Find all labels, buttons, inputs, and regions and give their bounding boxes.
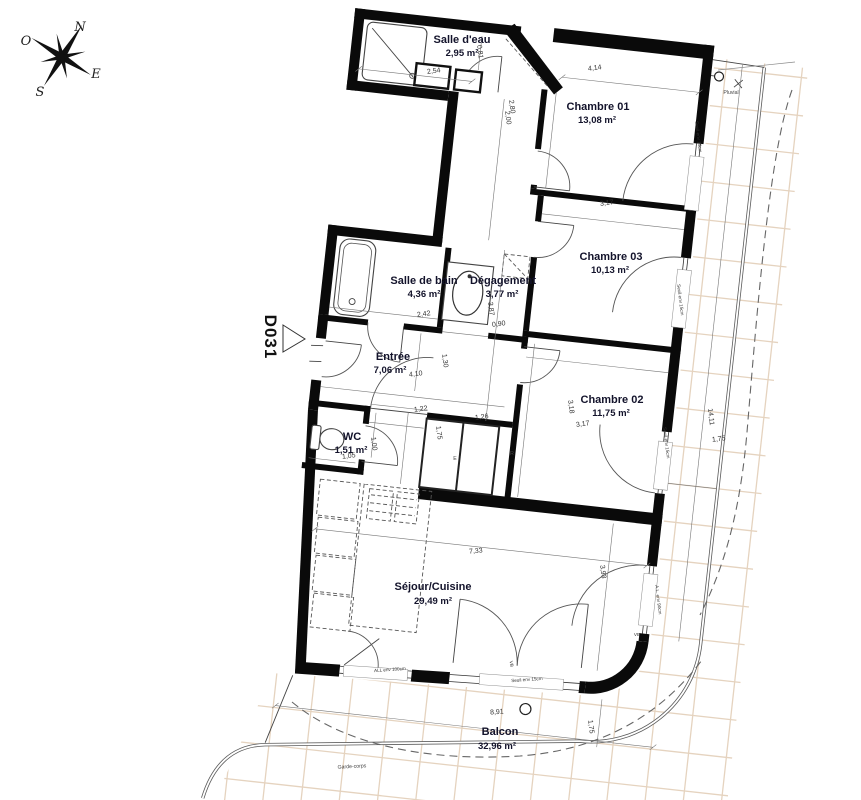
room-area-entree: 7,06 m²: [374, 365, 407, 376]
label-closet-r: R: [510, 451, 514, 457]
door-chambre03: [534, 221, 574, 261]
dim-ch2-w: 3,17: [576, 420, 590, 429]
room-label-degagement: Dégagement: [470, 275, 536, 287]
window-sejour-left: [339, 631, 416, 684]
room-label-chambre01: Chambre 01: [567, 101, 630, 113]
room-area-salle-de-bain: 4,36 m²: [408, 289, 441, 300]
dim-sej-h: 3,93: [598, 565, 607, 579]
label-vb-2: VB: [509, 660, 515, 667]
dim-balc-w: 8,91: [490, 709, 504, 717]
room-area-degagement: 3,77 m²: [486, 289, 519, 300]
dim-sej-w: 7,33: [469, 547, 483, 555]
window-sejour-right: [572, 558, 659, 634]
pluvial-outlet: [710, 71, 743, 88]
label-pluvial: Pluvial: [723, 90, 738, 96]
dim-ch2-h: 3,18: [566, 400, 575, 414]
room-label-chambre02: Chambre 02: [581, 394, 644, 406]
floorplan-page: N O E S D031 Salle d'eau 2,95 m² Chambre…: [0, 0, 861, 800]
label-vb-1: VB: [634, 632, 640, 637]
window-chambre02: [593, 425, 673, 495]
kitchen-units: [304, 479, 432, 638]
room-area-chambre02: 11,75 m²: [592, 408, 630, 419]
dim-wc-h: 1,00: [369, 437, 378, 451]
room-label-wc: WC: [343, 431, 361, 443]
room-area-salle-deau: 2,95 m²: [446, 48, 479, 59]
label-garde-corps: Garde-corps: [337, 763, 367, 771]
balcony-drain: [519, 703, 531, 715]
closets: [419, 418, 499, 495]
compass-rose: N O E S: [13, 6, 111, 104]
door-wc: [362, 426, 402, 466]
compass-e: E: [90, 67, 101, 82]
room-label-entree: Entrée: [376, 351, 410, 363]
door-chambre01: [534, 151, 574, 191]
bathtub: [333, 238, 377, 317]
unit-id-label: D031: [261, 315, 280, 360]
dim-ch1-w: 4,14: [588, 64, 602, 73]
compass-s: S: [36, 85, 45, 100]
door-chambre02: [520, 347, 560, 387]
dim-ent-w: 4,10: [409, 370, 423, 379]
dim-deg-gap: 0,90: [492, 320, 506, 329]
floorplan-canvas: N O E S D031 Salle d'eau 2,95 m² Chambre…: [0, 0, 861, 800]
entrance-marker: [283, 325, 305, 352]
dim-hall-w: 1,22: [414, 405, 428, 414]
dim-wc-w: 1,05: [342, 452, 356, 461]
dim-ch3-w: 3,17: [600, 199, 614, 208]
dim-ent-h: 1,30: [440, 354, 449, 368]
room-label-sejour: Séjour/Cuisine: [394, 581, 471, 593]
room-area-sejour: 29,49 m²: [414, 596, 452, 607]
room-label-balcon: Balcon: [482, 726, 519, 738]
room-area-balcon: 32,96 m²: [478, 741, 516, 752]
dim-terrace-len: 14,11: [706, 408, 715, 426]
label-window-al: A.L. env 90cm: [654, 585, 663, 615]
dim-balc-d: 1,75: [586, 720, 595, 734]
windows: [339, 111, 706, 709]
room-label-salle-de-bain: Salle de bain: [390, 275, 458, 287]
compass-n: N: [73, 20, 86, 35]
room-label-chambre03: Chambre 03: [580, 251, 643, 263]
door-entrance: [308, 339, 362, 380]
dim-ch1-h: 2,00: [503, 111, 512, 125]
room-area-chambre01: 13,08 m²: [578, 115, 616, 126]
compass-o: O: [21, 34, 32, 49]
label-closet-e: E: [453, 456, 457, 462]
dim-sdb-w: 2,42: [417, 310, 431, 319]
room-area-chambre03: 10,13 m²: [591, 265, 629, 276]
window-chambre01: [623, 136, 706, 211]
